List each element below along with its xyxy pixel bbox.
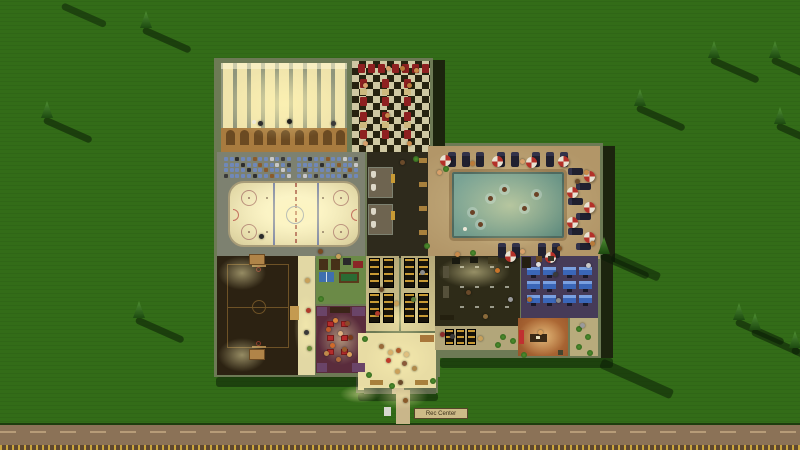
bleacher-seat[interactable] <box>287 163 291 167</box>
person[interactable] <box>404 352 409 357</box>
person[interactable] <box>402 361 407 366</box>
bleacher-seat[interactable] <box>235 168 239 172</box>
person[interactable] <box>590 241 595 246</box>
bleacher-seat[interactable] <box>348 174 352 178</box>
parasol[interactable] <box>440 155 451 166</box>
dumbbell[interactable] <box>490 286 494 288</box>
pool-lounger[interactable] <box>568 198 583 205</box>
gym-machine[interactable] <box>470 257 478 263</box>
bleacher-seat[interactable] <box>235 157 239 161</box>
gym-machine[interactable] <box>488 257 498 264</box>
pool-lounger[interactable] <box>576 213 591 220</box>
locker-unit[interactable] <box>418 293 429 323</box>
bleacher-seat[interactable] <box>241 174 245 178</box>
person[interactable] <box>556 298 561 303</box>
person[interactable] <box>345 321 350 326</box>
bleacher-seat[interactable] <box>270 163 274 167</box>
pool-lounger[interactable] <box>476 152 484 167</box>
person[interactable] <box>259 234 264 239</box>
bleacher-seat[interactable] <box>247 168 251 172</box>
diner-table[interactable] <box>382 122 389 128</box>
bleacher-seat[interactable] <box>326 157 330 161</box>
bleacher-seat[interactable] <box>258 163 262 167</box>
diner-booth[interactable] <box>378 64 385 73</box>
bleacher-seat[interactable] <box>275 157 279 161</box>
pool-lounger[interactable] <box>576 243 591 250</box>
diner-booth[interactable] <box>382 97 389 106</box>
gym-machine[interactable] <box>440 315 454 320</box>
parasol[interactable] <box>567 187 578 198</box>
bleacher-seat[interactable] <box>331 174 335 178</box>
bleacher-seat[interactable] <box>303 168 307 172</box>
person[interactable] <box>318 249 323 254</box>
potted-plant[interactable] <box>362 336 368 342</box>
bleacher-seat[interactable] <box>275 168 279 172</box>
person[interactable] <box>450 334 455 339</box>
pool-lounger[interactable] <box>546 152 554 167</box>
pool-lounger[interactable] <box>568 168 583 175</box>
bleacher-seat[interactable] <box>348 163 352 167</box>
dumbbell[interactable] <box>475 286 479 288</box>
bench[interactable] <box>370 380 383 385</box>
gym-machine[interactable] <box>443 286 449 298</box>
person[interactable] <box>305 278 310 283</box>
bleacher-seat[interactable] <box>235 174 239 178</box>
classroom-desk[interactable] <box>563 281 576 289</box>
bleacher-seat[interactable] <box>241 157 245 161</box>
person[interactable] <box>495 268 500 273</box>
restroom-door[interactable] <box>391 211 395 220</box>
bleacher-seat[interactable] <box>230 157 234 161</box>
person[interactable] <box>333 318 338 323</box>
bench[interactable] <box>419 158 427 163</box>
bleacher-seat[interactable] <box>287 168 291 172</box>
bleacher-seat[interactable] <box>337 163 341 167</box>
parasol[interactable] <box>492 156 503 167</box>
bleacher-seat[interactable] <box>303 174 307 178</box>
classroom-desk[interactable] <box>527 267 540 275</box>
pool-lounger[interactable] <box>511 152 519 167</box>
classroom-fixture[interactable] <box>548 256 554 261</box>
potted-plant[interactable] <box>389 383 395 389</box>
person[interactable] <box>520 159 525 164</box>
classroom-desk[interactable] <box>563 267 576 275</box>
conifer-tree[interactable] <box>41 101 53 121</box>
diner-table[interactable] <box>360 122 367 128</box>
person[interactable] <box>584 170 589 175</box>
classroom-desk[interactable] <box>543 295 556 303</box>
office-fixture[interactable] <box>519 330 524 344</box>
diner-booth[interactable] <box>360 112 367 121</box>
bleacher-seat[interactable] <box>241 163 245 167</box>
person[interactable] <box>411 297 416 302</box>
person[interactable] <box>407 141 412 146</box>
bench[interactable] <box>415 380 428 385</box>
conifer-tree[interactable] <box>789 331 800 351</box>
bleacher-seat[interactable] <box>337 174 341 178</box>
classroom-fixture[interactable] <box>522 257 531 268</box>
bench[interactable] <box>419 182 427 187</box>
locker-unit[interactable] <box>383 293 394 323</box>
potted-plant[interactable] <box>576 344 582 350</box>
parasol[interactable] <box>505 251 516 262</box>
parasol[interactable] <box>584 202 595 213</box>
bleacher-seat[interactable] <box>270 168 274 172</box>
person[interactable] <box>400 160 405 165</box>
bleacher-seat[interactable] <box>326 174 330 178</box>
potted-plant[interactable] <box>495 342 501 348</box>
diner-booth[interactable] <box>404 112 411 121</box>
bleacher-seat[interactable] <box>343 163 347 167</box>
bleacher-seat[interactable] <box>314 168 318 172</box>
person[interactable] <box>363 141 368 146</box>
games-equipment[interactable] <box>326 272 327 282</box>
potted-plant[interactable] <box>424 243 430 249</box>
gym-machine[interactable] <box>452 258 460 264</box>
person[interactable] <box>385 113 390 118</box>
bleacher-seat[interactable] <box>281 163 285 167</box>
bleacher-seat[interactable] <box>264 163 268 167</box>
locker-unit[interactable] <box>383 258 394 288</box>
bleacher-seat[interactable] <box>337 157 341 161</box>
diner-booth[interactable] <box>360 130 367 139</box>
person[interactable] <box>520 249 525 254</box>
games-equipment[interactable] <box>341 274 357 281</box>
equipment-crate[interactable] <box>249 254 265 265</box>
person[interactable] <box>508 297 513 302</box>
bench[interactable] <box>419 230 427 235</box>
bleacher-seat[interactable] <box>331 168 335 172</box>
bleacher-seat[interactable] <box>308 168 312 172</box>
person[interactable] <box>580 323 585 328</box>
swimmer[interactable] <box>522 206 527 211</box>
potted-plant[interactable] <box>587 350 593 356</box>
bleacher-seat[interactable] <box>230 174 234 178</box>
person[interactable] <box>324 351 329 356</box>
bleacher-seat[interactable] <box>354 157 358 161</box>
dumbbell[interactable] <box>475 306 479 308</box>
person[interactable] <box>347 352 352 357</box>
person[interactable] <box>336 254 341 259</box>
bleacher-seat[interactable] <box>287 174 291 178</box>
potted-plant[interactable] <box>510 338 516 344</box>
bleacher-seat[interactable] <box>308 157 312 161</box>
bleacher-seat[interactable] <box>224 157 228 161</box>
person[interactable] <box>258 121 263 126</box>
conifer-tree[interactable] <box>769 41 781 61</box>
bleacher-seat[interactable] <box>264 174 268 178</box>
diner-booth[interactable] <box>404 130 411 139</box>
person[interactable] <box>304 330 309 335</box>
person[interactable] <box>538 330 543 335</box>
person[interactable] <box>348 335 353 340</box>
bleacher-seat[interactable] <box>348 168 352 172</box>
bleacher-seat[interactable] <box>354 174 358 178</box>
diner-table[interactable] <box>360 89 367 95</box>
trash-bin[interactable] <box>384 407 391 416</box>
games-equipment[interactable] <box>319 259 328 270</box>
locker-unit[interactable] <box>467 329 476 345</box>
parasol[interactable] <box>558 156 569 167</box>
bleacher-seat[interactable] <box>258 157 262 161</box>
basketball-court[interactable] <box>227 264 289 348</box>
dumbbell[interactable] <box>490 266 494 268</box>
classroom-desk[interactable] <box>579 281 592 289</box>
potted-plant[interactable] <box>470 250 476 256</box>
potted-plant[interactable] <box>413 156 419 162</box>
bleacher-seat[interactable] <box>297 174 301 178</box>
equipment-crate[interactable] <box>249 349 265 360</box>
diner-table[interactable] <box>404 89 411 95</box>
person[interactable] <box>363 83 368 88</box>
bleacher-seat[interactable] <box>303 157 307 161</box>
bleacher-seat[interactable] <box>331 157 335 161</box>
building-sign[interactable]: Rec Center <box>414 408 468 419</box>
conifer-tree[interactable] <box>774 107 786 127</box>
potted-plant[interactable] <box>443 166 449 172</box>
person[interactable] <box>403 398 408 403</box>
person[interactable] <box>440 332 445 337</box>
conifer-tree[interactable] <box>708 41 720 61</box>
toilet-fixture[interactable] <box>371 208 376 215</box>
person[interactable] <box>379 344 384 349</box>
bleacher-seat[interactable] <box>247 157 251 161</box>
swimmer[interactable] <box>488 196 493 201</box>
locker-unit[interactable] <box>456 329 465 345</box>
bar-fixture[interactable] <box>317 307 327 316</box>
bleacher-seat[interactable] <box>326 168 330 172</box>
bleacher-seat[interactable] <box>354 163 358 167</box>
diner-booth[interactable] <box>382 130 389 139</box>
dumbbell[interactable] <box>505 266 509 268</box>
bleacher-seat[interactable] <box>270 157 274 161</box>
restroom-door[interactable] <box>290 306 299 320</box>
person[interactable] <box>336 357 341 362</box>
dumbbell[interactable] <box>505 306 509 308</box>
potted-plant[interactable] <box>500 334 506 340</box>
bleacher-seat[interactable] <box>297 168 301 172</box>
potted-plant[interactable] <box>521 352 527 358</box>
bar-fixture[interactable] <box>330 307 350 313</box>
diner-table[interactable] <box>382 89 389 95</box>
classroom-desk[interactable] <box>579 295 592 303</box>
bar-fixture[interactable] <box>352 363 365 372</box>
bleacher-seat[interactable] <box>343 157 347 161</box>
bleacher-seat[interactable] <box>297 157 301 161</box>
bleacher-seat[interactable] <box>224 168 228 172</box>
classroom-desk[interactable] <box>543 281 556 289</box>
bleacher-seat[interactable] <box>275 174 279 178</box>
potted-plant[interactable] <box>318 296 324 302</box>
bleacher-seat[interactable] <box>326 163 330 167</box>
bleacher-seat[interactable] <box>230 163 234 167</box>
pool-lounger[interactable] <box>576 183 591 190</box>
gym-machine[interactable] <box>443 266 449 278</box>
person[interactable] <box>420 270 425 275</box>
person[interactable] <box>466 290 471 295</box>
person[interactable] <box>412 366 417 371</box>
reception-desk[interactable] <box>420 335 434 342</box>
person[interactable] <box>396 348 401 353</box>
bleacher-seat[interactable] <box>314 163 318 167</box>
swimmer[interactable] <box>502 187 507 192</box>
potted-plant[interactable] <box>585 334 591 340</box>
person[interactable] <box>307 346 312 351</box>
swimming-pool[interactable] <box>452 172 564 238</box>
classroom-desk[interactable] <box>579 267 592 275</box>
diner-booth[interactable] <box>368 64 375 73</box>
person[interactable] <box>398 380 403 385</box>
person[interactable] <box>437 170 442 175</box>
classroom-desk[interactable] <box>563 295 576 303</box>
conifer-tree[interactable] <box>133 301 145 321</box>
bleacher-seat[interactable] <box>314 157 318 161</box>
bleacher-seat[interactable] <box>343 174 347 178</box>
game-viewport[interactable]: Rec Center <box>0 0 800 450</box>
swimmer[interactable] <box>478 222 483 227</box>
bleacher-seat[interactable] <box>235 163 239 167</box>
bowling-ball[interactable] <box>252 120 256 124</box>
potted-plant[interactable] <box>366 372 372 378</box>
bleacher-seat[interactable] <box>253 157 257 161</box>
diner-booth[interactable] <box>360 97 367 106</box>
person[interactable] <box>470 161 475 166</box>
bleacher-seat[interactable] <box>314 174 318 178</box>
person[interactable] <box>407 83 412 88</box>
pool-lounger[interactable] <box>568 228 583 235</box>
bar-table[interactable] <box>341 335 348 341</box>
bleacher-seat[interactable] <box>224 174 228 178</box>
parasol[interactable] <box>567 217 578 228</box>
bleacher-seat[interactable] <box>320 163 324 167</box>
diner-booth[interactable] <box>404 97 411 106</box>
person[interactable] <box>478 336 483 341</box>
diner-booth[interactable] <box>392 64 399 73</box>
pool-lounger[interactable] <box>462 152 470 167</box>
person[interactable] <box>553 272 558 277</box>
bleacher-seat[interactable] <box>275 163 279 167</box>
locker-unit[interactable] <box>369 258 380 288</box>
dumbbell[interactable] <box>505 286 509 288</box>
games-equipment[interactable] <box>353 261 363 268</box>
restroom-door[interactable] <box>391 174 395 183</box>
person[interactable] <box>386 358 391 363</box>
office-fixture[interactable] <box>558 350 563 355</box>
person[interactable] <box>575 179 580 184</box>
bleacher-seat[interactable] <box>281 157 285 161</box>
potted-plant[interactable] <box>430 378 436 384</box>
conifer-tree[interactable] <box>634 89 646 109</box>
person[interactable] <box>586 263 591 268</box>
bleacher-seat[interactable] <box>230 168 234 172</box>
person[interactable] <box>395 369 400 374</box>
conifer-tree[interactable] <box>140 11 152 31</box>
ice-rink[interactable] <box>228 181 360 247</box>
bleacher-seat[interactable] <box>303 163 307 167</box>
games-equipment[interactable] <box>343 258 351 265</box>
diner-booth[interactable] <box>358 64 365 73</box>
bleacher-seat[interactable] <box>297 163 301 167</box>
bar-fixture[interactable] <box>317 363 327 372</box>
room-corridor[interactable] <box>298 256 315 375</box>
bleacher-seat[interactable] <box>308 163 312 167</box>
dumbbell[interactable] <box>475 266 479 268</box>
person[interactable] <box>527 297 532 302</box>
person[interactable] <box>400 66 405 71</box>
person[interactable] <box>414 68 419 73</box>
person[interactable] <box>330 343 335 348</box>
swimmer[interactable] <box>534 192 539 197</box>
bleacher-seat[interactable] <box>224 163 228 167</box>
bench[interactable] <box>419 206 427 211</box>
person[interactable] <box>331 121 336 126</box>
conifer-tree[interactable] <box>733 303 745 323</box>
diner-table[interactable] <box>404 122 411 128</box>
bleacher-seat[interactable] <box>258 168 262 172</box>
toilet-fixture[interactable] <box>371 221 376 228</box>
toilet-fixture[interactable] <box>371 171 376 178</box>
bleacher-seat[interactable] <box>270 174 274 178</box>
person[interactable] <box>375 311 380 316</box>
person[interactable] <box>394 301 399 306</box>
bleacher-seat[interactable] <box>253 163 257 167</box>
bowling-ball[interactable] <box>463 227 467 231</box>
dumbbell[interactable] <box>460 286 464 288</box>
locker-unit[interactable] <box>369 293 380 323</box>
diner-booth[interactable] <box>382 79 389 88</box>
swimmer[interactable] <box>470 210 475 215</box>
person[interactable] <box>338 331 343 336</box>
dumbbell[interactable] <box>490 306 494 308</box>
bleacher-seat[interactable] <box>258 174 262 178</box>
person[interactable] <box>388 350 393 355</box>
bleacher-seat[interactable] <box>253 168 257 172</box>
person[interactable] <box>326 327 331 332</box>
bleacher-seat[interactable] <box>287 157 291 161</box>
bleacher-seat[interactable] <box>241 168 245 172</box>
bleacher-seat[interactable] <box>308 174 312 178</box>
bleacher-seat[interactable] <box>281 174 285 178</box>
bleacher-seat[interactable] <box>247 163 251 167</box>
classroom-desk[interactable] <box>527 281 540 289</box>
bleacher-seat[interactable] <box>281 168 285 172</box>
person[interactable] <box>287 119 292 124</box>
parasol[interactable] <box>526 157 537 168</box>
bleacher-seat[interactable] <box>337 168 341 172</box>
dumbbell[interactable] <box>460 306 464 308</box>
person[interactable] <box>386 66 391 71</box>
bleacher-seat[interactable] <box>354 168 358 172</box>
bleacher-seat[interactable] <box>320 168 324 172</box>
bleacher-seat[interactable] <box>320 174 324 178</box>
person[interactable] <box>342 347 347 352</box>
bleacher-seat[interactable] <box>331 163 335 167</box>
games-equipment[interactable] <box>331 259 340 270</box>
person[interactable] <box>306 308 311 313</box>
diner-booth[interactable] <box>422 64 429 73</box>
locker-unit[interactable] <box>404 258 415 288</box>
bar-table[interactable] <box>327 335 334 341</box>
person[interactable] <box>483 314 488 319</box>
room-bowling-lanes[interactable] <box>221 63 347 128</box>
dumbbell[interactable] <box>460 266 464 268</box>
person[interactable] <box>379 287 384 292</box>
person[interactable] <box>557 246 562 251</box>
bleacher-seat[interactable] <box>348 157 352 161</box>
bleacher-seat[interactable] <box>253 174 257 178</box>
bar-fixture[interactable] <box>352 307 365 316</box>
office-fixture[interactable] <box>536 336 540 339</box>
